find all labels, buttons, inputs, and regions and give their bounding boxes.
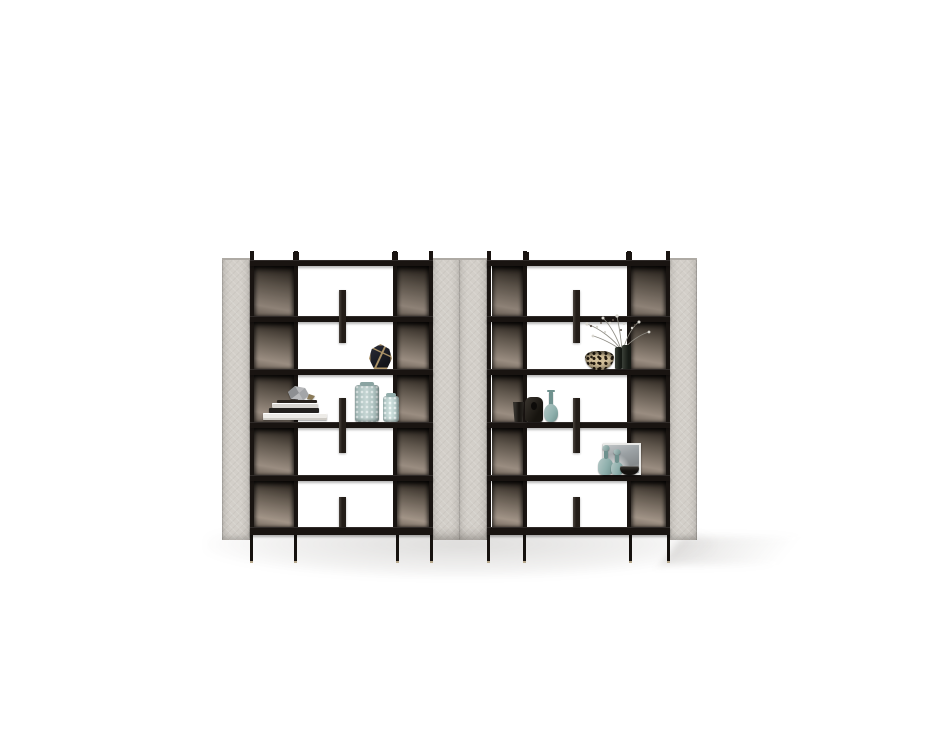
product-render-stage bbox=[0, 0, 950, 733]
decor-dark-faceted-cup bbox=[513, 402, 524, 422]
bookshelf-unit-left bbox=[222, 250, 460, 565]
decor-bud-vase bbox=[615, 347, 622, 369]
decor-bud-vase bbox=[622, 345, 631, 369]
decor-knurled-glass-vase-short bbox=[383, 396, 399, 422]
decor-book-stack bbox=[263, 384, 329, 422]
decor-layer bbox=[222, 250, 460, 565]
decor-knurled-glass-vase-tall bbox=[355, 385, 379, 422]
decor-dark-vessel bbox=[525, 397, 543, 422]
decor-teal-genie-vase bbox=[544, 391, 558, 422]
decor-layer bbox=[459, 250, 697, 565]
decor-mosaic-leopard-bowl bbox=[585, 351, 614, 370]
decor-book bbox=[263, 413, 327, 420]
decor-faceted-geometric-vase bbox=[369, 344, 392, 369]
bookshelf-unit-right bbox=[459, 250, 697, 565]
decor-teal-genie-vase-lip bbox=[547, 390, 555, 392]
